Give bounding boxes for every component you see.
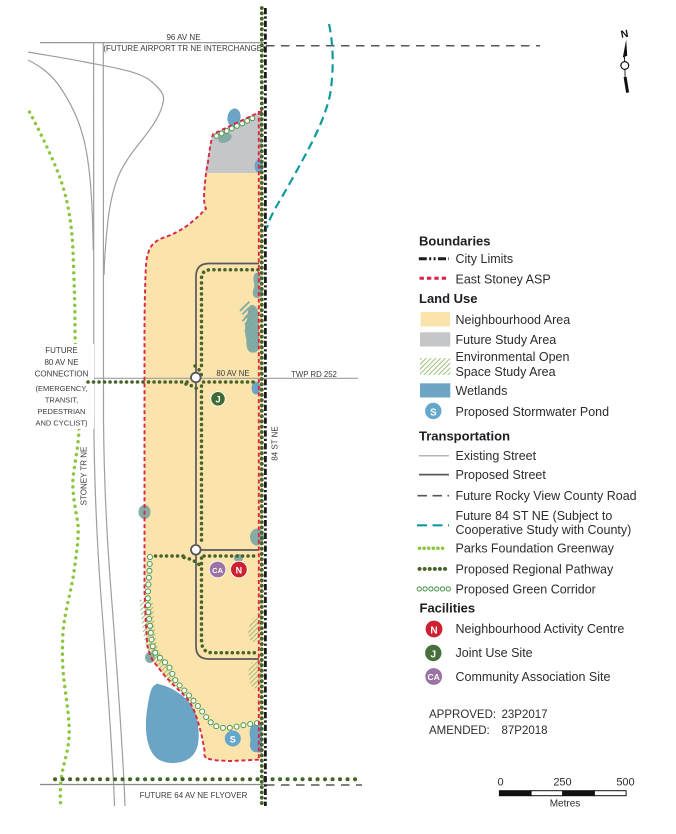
svg-text:CONNECTION: CONNECTION bbox=[35, 370, 89, 379]
svg-text:FUTURE 64 AV NE FLYOVER: FUTURE 64 AV NE FLYOVER bbox=[140, 791, 248, 800]
svg-text:Future 84 ST NE (Subject to: Future 84 ST NE (Subject to bbox=[456, 509, 613, 523]
svg-text:Boundaries: Boundaries bbox=[419, 234, 491, 249]
svg-text:APPROVED:: APPROVED: bbox=[429, 709, 496, 721]
svg-text:FUTURE: FUTURE bbox=[45, 346, 77, 355]
svg-text:Parks Foundation Greenway: Parks Foundation Greenway bbox=[456, 542, 615, 556]
svg-text:(EMERGENCY,: (EMERGENCY, bbox=[36, 384, 88, 393]
svg-text:City Limits: City Limits bbox=[456, 252, 514, 266]
svg-text:Neighbourhood Area: Neighbourhood Area bbox=[456, 313, 571, 327]
svg-text:Wetlands: Wetlands bbox=[456, 384, 508, 398]
svg-text:Cooperative Study with County): Cooperative Study with County) bbox=[456, 523, 632, 537]
svg-text:Joint Use Site: Joint Use Site bbox=[456, 646, 533, 660]
svg-text:Land Use: Land Use bbox=[419, 291, 478, 306]
svg-text:PEDESTRIAN: PEDESTRIAN bbox=[38, 407, 86, 416]
svg-text:Community Association Site: Community Association Site bbox=[456, 670, 611, 684]
svg-text:96 AV NE: 96 AV NE bbox=[166, 33, 200, 42]
svg-text:East Stoney ASP: East Stoney ASP bbox=[456, 273, 551, 287]
svg-text:AMENDED:: AMENDED: bbox=[429, 725, 490, 737]
svg-text:Proposed Street: Proposed Street bbox=[456, 468, 547, 482]
svg-text:Transportation: Transportation bbox=[419, 429, 510, 444]
svg-text:80 AV NE: 80 AV NE bbox=[216, 369, 249, 378]
svg-text:23P2017: 23P2017 bbox=[502, 709, 548, 721]
svg-text:80 AV NE: 80 AV NE bbox=[44, 358, 78, 367]
svg-text:Future Study Area: Future Study Area bbox=[456, 333, 557, 347]
svg-text:Existing Street: Existing Street bbox=[456, 449, 537, 463]
svg-text:TWP RD 252: TWP RD 252 bbox=[291, 370, 337, 379]
svg-text:S: S bbox=[230, 735, 236, 745]
svg-text:N: N bbox=[236, 566, 243, 576]
svg-text:Metres: Metres bbox=[550, 799, 581, 810]
svg-text:CA: CA bbox=[212, 566, 223, 575]
svg-text:(FUTURE AIRPORT TR NE INTERCHA: (FUTURE AIRPORT TR NE INTERCHANGE) bbox=[103, 44, 265, 53]
svg-text:N: N bbox=[430, 626, 437, 637]
svg-text:87P2018: 87P2018 bbox=[502, 725, 548, 737]
svg-text:Facilities: Facilities bbox=[420, 601, 476, 616]
svg-text:Space Study Area: Space Study Area bbox=[456, 365, 556, 379]
svg-text:J: J bbox=[431, 650, 437, 661]
svg-text:84 ST NE: 84 ST NE bbox=[271, 426, 280, 461]
svg-text:S: S bbox=[430, 408, 437, 419]
svg-text:STONEY TR NE: STONEY TR NE bbox=[80, 447, 89, 506]
svg-text:J: J bbox=[215, 394, 220, 405]
svg-text:500: 500 bbox=[616, 777, 634, 789]
svg-text:Neighbourhood Activity Centre: Neighbourhood Activity Centre bbox=[456, 622, 625, 636]
svg-text:Environmental Open: Environmental Open bbox=[456, 350, 570, 364]
svg-text:0: 0 bbox=[498, 777, 504, 789]
svg-text:CA: CA bbox=[428, 672, 440, 682]
svg-text:250: 250 bbox=[553, 777, 571, 789]
svg-text:TRANSIT,: TRANSIT, bbox=[45, 396, 78, 405]
svg-text:Future Rocky View County Road: Future Rocky View County Road bbox=[456, 489, 637, 503]
svg-text:Proposed Green Corridor: Proposed Green Corridor bbox=[456, 582, 596, 596]
svg-text:Proposed Regional Pathway: Proposed Regional Pathway bbox=[456, 562, 614, 576]
svg-text:Proposed Stormwater Pond: Proposed Stormwater Pond bbox=[456, 405, 610, 419]
svg-text:AND CYCLIST): AND CYCLIST) bbox=[35, 419, 88, 428]
